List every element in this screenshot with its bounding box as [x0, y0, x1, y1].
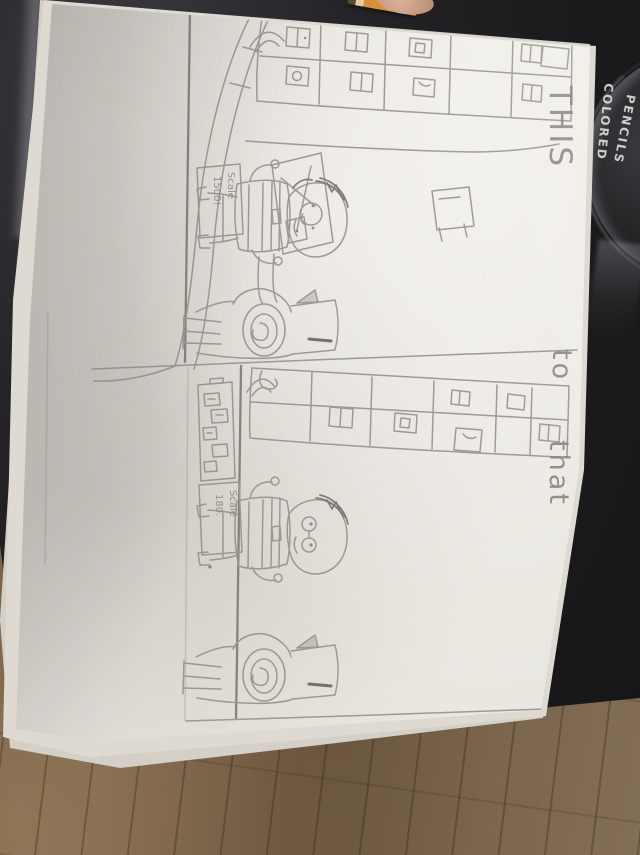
- menu-board-2: [198, 378, 235, 481]
- person-2: [197, 477, 348, 582]
- panel-divider: [92, 350, 577, 369]
- photo-of-child-drawing: { "photo": { "handwriting": { "word1": "…: [0, 0, 640, 855]
- handwriting-to: to: [546, 349, 577, 382]
- panel1-drawing: Scale 1500!: [94, 8, 572, 381]
- scale-sign-2-line1: Scale: [227, 490, 238, 517]
- paper-crease: [45, 313, 48, 564]
- car-2: [183, 634, 338, 704]
- storefront-shelf-grid-2: [250, 368, 569, 457]
- scale-sign-2-line2: 180.: [213, 494, 224, 516]
- stool-1: [432, 187, 474, 241]
- handwriting-that: that: [543, 440, 574, 507]
- scale-sign-1-line2: 1500!: [211, 176, 222, 205]
- scale-sign-1-line1: Scale: [225, 172, 236, 199]
- handwriting-this: THIS: [542, 86, 578, 169]
- panel2-drawing: Scale 180.: [183, 366, 569, 721]
